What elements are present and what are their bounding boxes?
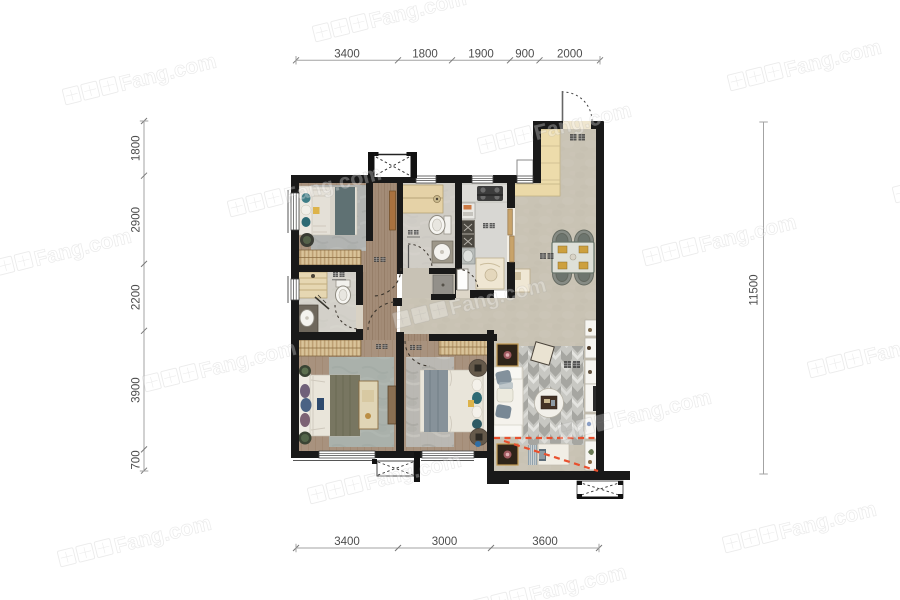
- svg-text:3600: 3600: [532, 536, 558, 548]
- svg-text:1800: 1800: [412, 49, 438, 61]
- svg-text:2900: 2900: [131, 207, 143, 233]
- svg-text:900: 900: [515, 49, 534, 61]
- svg-text:3400: 3400: [334, 49, 360, 61]
- svg-text:3900: 3900: [131, 377, 143, 403]
- svg-text:1800: 1800: [131, 136, 143, 162]
- svg-text:11500: 11500: [749, 274, 761, 305]
- svg-text:700: 700: [131, 450, 143, 469]
- svg-text:3000: 3000: [432, 536, 458, 548]
- svg-text:2200: 2200: [131, 285, 143, 311]
- svg-text:3400: 3400: [334, 536, 360, 548]
- svg-text:2000: 2000: [557, 49, 583, 61]
- svg-text:1900: 1900: [468, 49, 494, 61]
